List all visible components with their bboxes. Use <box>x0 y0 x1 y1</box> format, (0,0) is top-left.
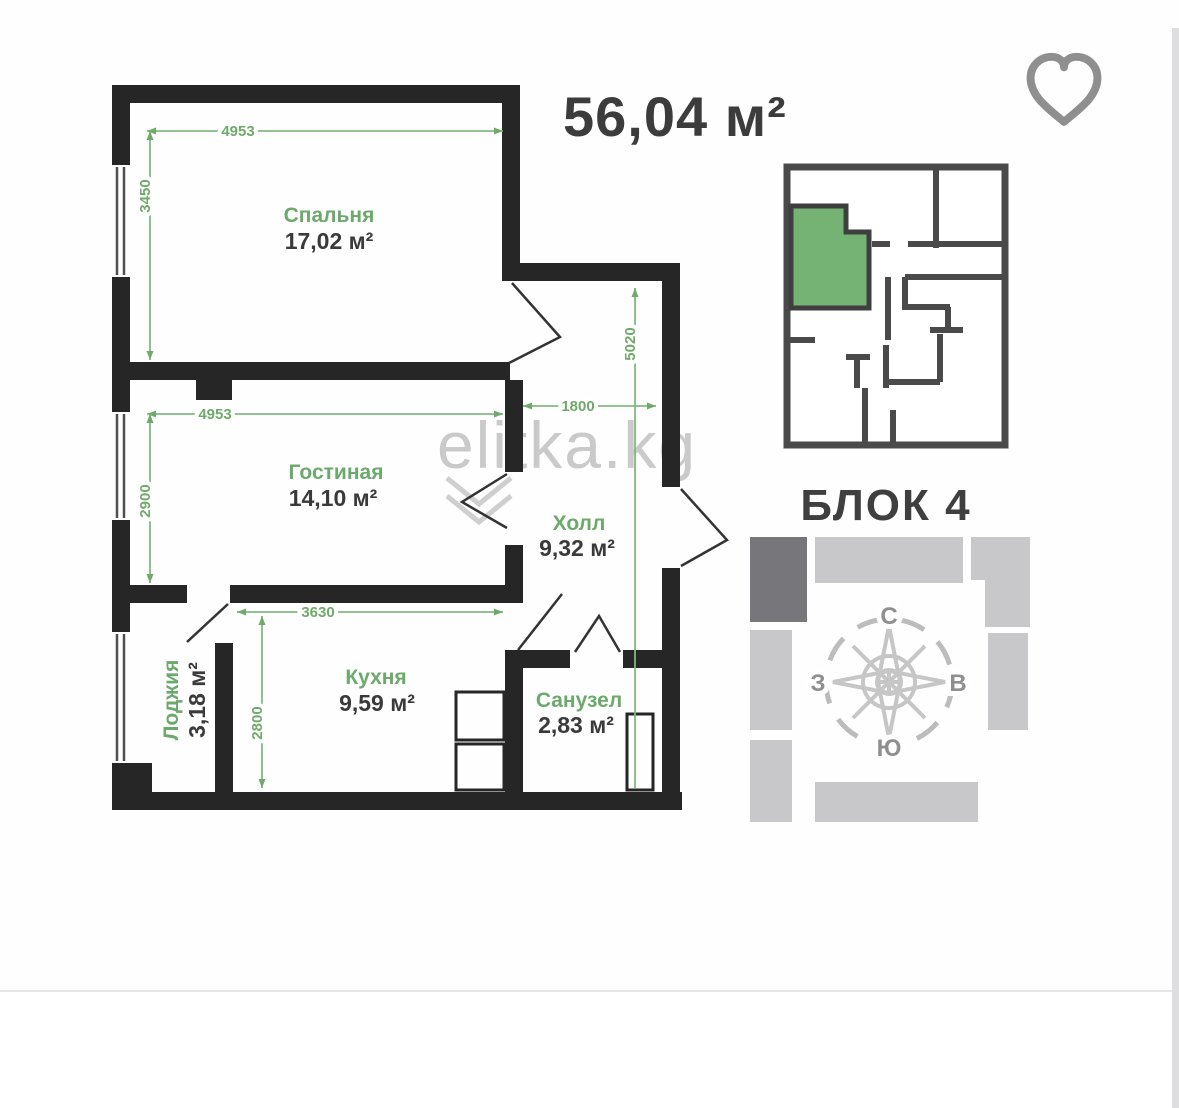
dim-hall-height: 5020 <box>622 327 639 360</box>
favorite-button[interactable] <box>1012 40 1116 144</box>
compass-north-label: С <box>880 603 897 630</box>
compass-east-label: В <box>949 670 966 697</box>
watermark: elitka.kg <box>437 408 697 522</box>
room-name-living: Гостиная <box>289 461 384 484</box>
room-area-living: 14,10 м² <box>289 485 378 511</box>
heart-icon <box>1020 48 1108 136</box>
dim-bedroom-width: 4953 <box>221 123 254 140</box>
room-name-bathroom: Санузел <box>536 689 622 712</box>
watermark-text: elitka.kg <box>437 408 697 482</box>
compass-south-label: Ю <box>877 735 902 762</box>
dim-kitchen-width: 3630 <box>301 604 334 621</box>
room-area-bathroom: 2,83 м² <box>538 712 614 738</box>
block-mini-plan <box>787 167 1005 445</box>
dim-living-width: 4953 <box>198 406 231 423</box>
footer-bar: 2-к квартира 56.04м² <box>0 992 1179 1108</box>
compass-west-label: З <box>810 670 825 697</box>
scrollbar[interactable] <box>1172 28 1179 1108</box>
windows <box>117 167 124 761</box>
dim-kitchen-height: 2800 <box>249 706 266 739</box>
block-title: БЛОК 4 <box>800 481 971 530</box>
room-area-bedroom: 17,02 м² <box>285 228 374 254</box>
room-name-kitchen: Кухня <box>345 666 406 689</box>
room-area-hall: 9,32 м² <box>539 535 615 561</box>
room-name-bedroom: Спальня <box>284 204 375 227</box>
room-area-loggia: 3,18 м² <box>184 662 210 738</box>
dim-hall-width: 1800 <box>561 398 594 415</box>
room-area-kitchen: 9,59 м² <box>339 690 415 716</box>
room-name-loggia: Лоджия <box>160 660 183 741</box>
page-title: 56,04 м² <box>563 84 787 149</box>
watermark-chevron-icon <box>447 496 511 522</box>
compass-icon: С Ю З В <box>810 603 966 762</box>
room-name-hall: Холл <box>553 512 606 535</box>
listing-screen: 56,04 м² elitka.kg <box>0 0 1179 1108</box>
dim-living-height: 2900 <box>137 484 154 517</box>
dim-bedroom-height: 3450 <box>137 179 154 212</box>
